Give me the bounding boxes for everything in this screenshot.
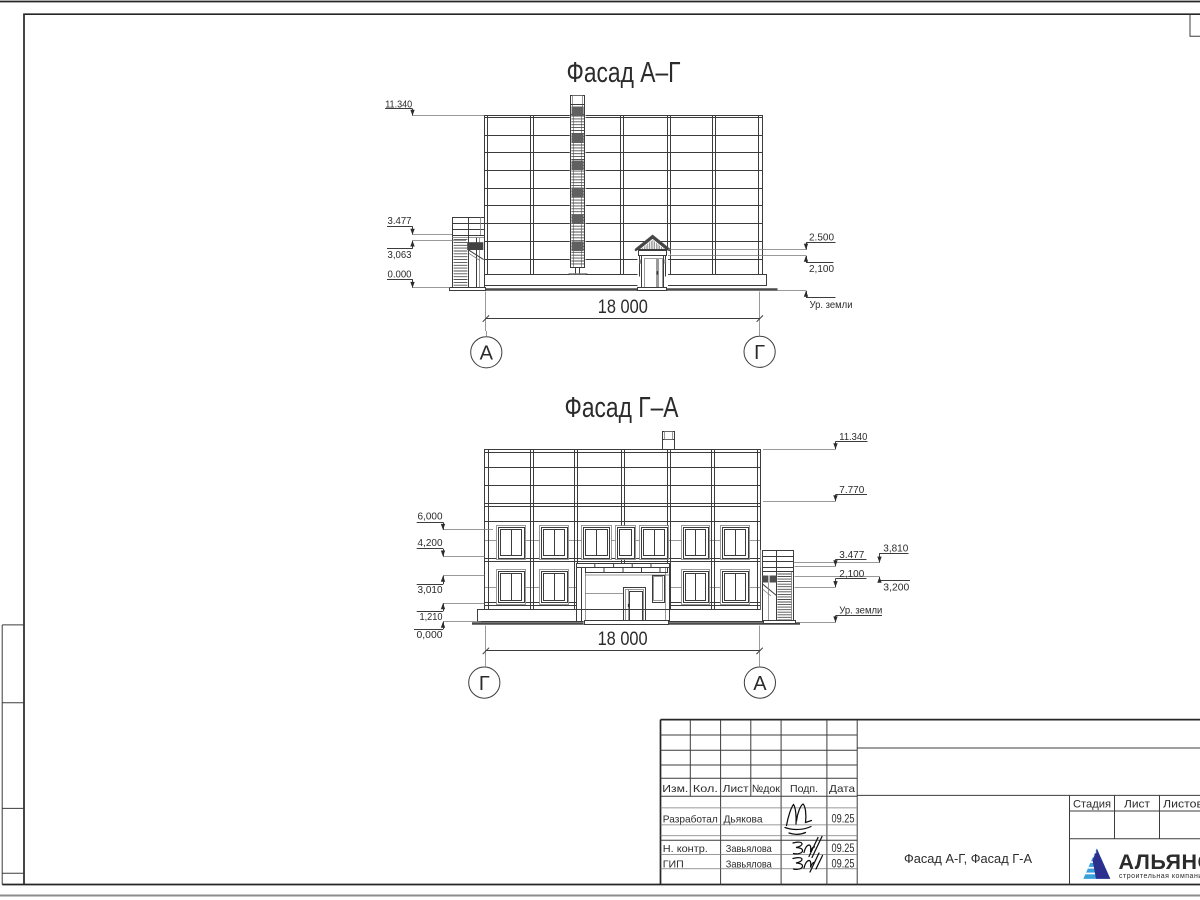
svg-text:Стадия: Стадия — [1073, 799, 1111, 811]
svg-text:6,000: 6,000 — [418, 510, 443, 522]
svg-text:строительная компания: строительная компания — [1119, 873, 1200, 880]
svg-text:09.25: 09.25 — [832, 814, 855, 826]
svg-text:Подп.: Подп. — [790, 783, 818, 795]
svg-text:Фасад Г–А: Фасад Г–А — [565, 392, 680, 424]
svg-text:09.25: 09.25 — [832, 858, 855, 870]
svg-text:№док: №док — [752, 783, 780, 795]
svg-text:3.477: 3.477 — [388, 215, 412, 227]
svg-text:Лист: Лист — [1124, 799, 1150, 811]
svg-text:18 000: 18 000 — [598, 297, 648, 318]
svg-text:Дата: Дата — [829, 783, 855, 795]
svg-text:3,810: 3,810 — [883, 543, 908, 555]
svg-text:А: А — [480, 343, 494, 365]
svg-text:ГИП: ГИП — [663, 859, 684, 870]
svg-text:3,063: 3,063 — [388, 249, 412, 261]
svg-text:0,000: 0,000 — [417, 629, 443, 641]
svg-text:Завьялова: Завьялова — [726, 859, 772, 870]
svg-text:3,010: 3,010 — [418, 584, 443, 596]
svg-text:Изм.: Изм. — [662, 783, 688, 795]
svg-text:Фасад А–Г: Фасад А–Г — [567, 57, 681, 89]
svg-text:А: А — [753, 673, 767, 695]
svg-text:Разработал: Разработал — [663, 814, 718, 826]
svg-text:2,100: 2,100 — [809, 263, 834, 275]
svg-text:18 000: 18 000 — [598, 629, 648, 650]
svg-text:4,200: 4,200 — [418, 537, 443, 549]
svg-text:09.25: 09.25 — [832, 843, 855, 855]
svg-text:АЛЬЯНС: АЛЬЯНС — [1119, 850, 1200, 874]
svg-text:Кол.: Кол. — [693, 783, 718, 795]
svg-text:Ур. земли: Ур. земли — [810, 300, 853, 311]
svg-text:Ур. земли: Ур. земли — [839, 606, 882, 617]
svg-text:1,210: 1,210 — [420, 611, 443, 623]
svg-text:Лист: Лист — [723, 783, 749, 795]
svg-text:Листов: Листов — [1163, 799, 1200, 811]
svg-text:Г: Г — [479, 673, 490, 695]
svg-text:Н. контр.: Н. контр. — [663, 844, 708, 855]
svg-text:Г: Г — [754, 342, 765, 364]
svg-text:Дьякова: Дьякова — [724, 815, 763, 826]
svg-text:Завьялова: Завьялова — [726, 844, 772, 855]
svg-text:Фасад А-Г, Фасад Г-А: Фасад А-Г, Фасад Г-А — [904, 851, 1032, 866]
svg-text:0.000: 0.000 — [388, 269, 412, 281]
svg-text:2.500: 2.500 — [809, 231, 834, 243]
svg-text:3,200: 3,200 — [883, 582, 909, 594]
